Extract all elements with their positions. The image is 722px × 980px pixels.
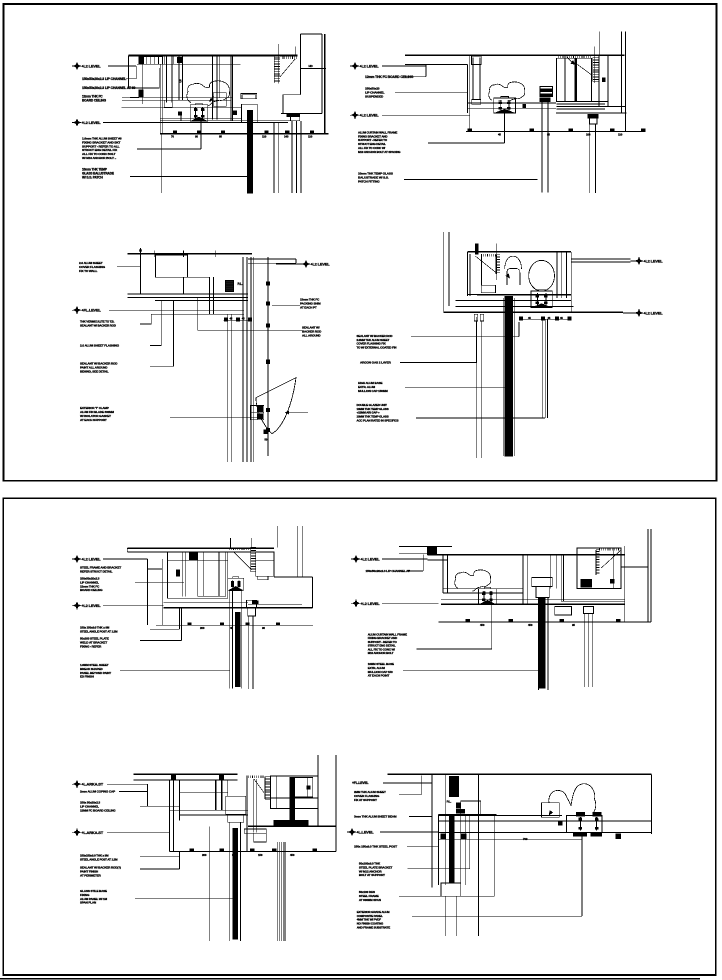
svg-text:+FL.LEVEL: +FL.LEVEL	[81, 308, 101, 313]
svg-text:M10 ANCHOR BOLT: M10 ANCHOR BOLT	[368, 651, 394, 655]
svg-text:STEEL ANGLE POST AT 1.2M: STEEL ANGLE POST AT 1.2M	[80, 629, 118, 633]
svg-text:+L2 LEVEL: +L2 LEVEL	[81, 120, 101, 125]
svg-text:+L2 LEVEL: +L2 LEVEL	[360, 557, 380, 562]
svg-text:150: 150	[258, 853, 263, 857]
svg-text:B: B	[179, 79, 182, 84]
svg-text:12mm THK FC BOARD CEILING: 12mm THK FC BOARD CEILING	[365, 75, 414, 79]
svg-text:150x50x20x2.3 LIP CHANNEL: 150x50x20x2.3 LIP CHANNEL	[82, 77, 126, 81]
svg-text:+L2 LEVEL: +L2 LEVEL	[81, 64, 101, 69]
svg-text:+L2 LEVEL: +L2 LEVEL	[81, 603, 101, 608]
svg-text:700: 700	[523, 837, 528, 841]
svg-text:90: 90	[195, 134, 198, 138]
svg-text:+L.ARKA.ST: +L.ARKA.ST	[81, 830, 104, 835]
svg-text:AT PERIMETER: AT PERIMETER	[80, 873, 102, 877]
svg-text:450: 450	[290, 853, 295, 857]
svg-text:M10 ANCHOR BOLT AT SPACING: M10 ANCHOR BOLT AT SPACING	[358, 150, 401, 154]
svg-text:450: 450	[528, 623, 533, 627]
svg-text:REFER STRUCT DETAIL: REFER STRUCT DETAIL	[80, 569, 113, 573]
svg-text:BOARD CEILING: BOARD CEILING	[82, 99, 107, 103]
svg-text:+L.ARKA.ST: +L.ARKA.ST	[81, 782, 104, 787]
svg-text:W/ M10 ANCHOR BOLT ..: W/ M10 ANCHOR BOLT ..	[82, 156, 116, 160]
svg-text:95: 95	[572, 623, 575, 627]
svg-text:SUSPENDED: SUSPENDED	[365, 94, 384, 98]
svg-text:AT EACH SUPPORT: AT EACH SUPPORT	[80, 418, 107, 422]
svg-text:+L2 LEVEL: +L2 LEVEL	[360, 601, 380, 606]
svg-text:BEHIND, SEE DETAIL: BEHIND, SEE DETAIL	[80, 369, 109, 373]
svg-text:FIX AT SUPPORT: FIX AT SUPPORT	[354, 798, 377, 802]
svg-text:FIXING - REFER: FIXING - REFER	[80, 644, 102, 648]
svg-text:+L2 LEVEL: +L2 LEVEL	[359, 113, 379, 118]
svg-text:MULLION CAP 150MM: MULLION CAP 150MM	[358, 389, 388, 393]
svg-text:ACC PLAN RATED IN SPECIFICS: ACC PLAN RATED IN SPECIFICS	[357, 418, 399, 422]
svg-text:W/ S.S. PATCH: W/ S.S. PATCH	[82, 176, 103, 180]
svg-text:+FL.LEVEL: +FL.LEVEL	[352, 781, 369, 785]
svg-text:45: 45	[230, 626, 233, 630]
svg-text:+L2 LEVEL: +L2 LEVEL	[643, 258, 663, 263]
svg-text:100: 100	[586, 132, 591, 136]
svg-text:3mm THK ALUM SHEET BEAM: 3mm THK ALUM SHEET BEAM	[354, 815, 397, 819]
svg-text:+L2 LEVEL: +L2 LEVEL	[310, 262, 330, 267]
svg-text:P.L.: P.L.	[238, 282, 243, 286]
svg-text:200: 200	[202, 853, 207, 857]
svg-text:ED FINISH: ED FINISH	[80, 675, 94, 679]
svg-text:SEALANT W/ BACKER ROD: SEALANT W/ BACKER ROD	[80, 324, 116, 328]
svg-text:+L2 LEVEL: +L2 LEVEL	[81, 557, 101, 562]
svg-text:FIX TO WALL: FIX TO WALL	[79, 269, 97, 273]
svg-text:AT EACH PT: AT EACH PT	[300, 305, 317, 309]
svg-text:PATCH FITTING: PATCH FITTING	[358, 180, 380, 184]
svg-text:450: 450	[480, 623, 485, 627]
svg-text:110: 110	[262, 134, 267, 138]
svg-text:+L.LEVEL: +L.LEVEL	[356, 830, 374, 835]
svg-text:50: 50	[265, 438, 268, 442]
svg-text:TO W/ EXTERNAL COATED FIN: TO W/ EXTERNAL COATED FIN	[357, 346, 397, 350]
svg-text:AT 600MM SPAN: AT 600MM SPAN	[359, 898, 381, 902]
svg-text:STEEL ANGLE POST AT 1.2M: STEEL ANGLE POST AT 1.2M	[80, 857, 118, 861]
svg-text:85: 85	[219, 134, 222, 138]
svg-text:200: 200	[200, 626, 205, 630]
svg-text:110: 110	[618, 132, 623, 136]
svg-text:2mm ALUM COPING CAP: 2mm ALUM COPING CAP	[80, 790, 115, 794]
svg-text:110: 110	[308, 134, 313, 138]
svg-text:P.L.: P.L.	[447, 800, 452, 804]
svg-text:12MM FC BOARD CEILING: 12MM FC BOARD CEILING	[80, 808, 116, 812]
svg-text:+L2 LEVEL: +L2 LEVEL	[643, 310, 663, 315]
svg-text:BOLT AT SUPPORT: BOLT AT SUPPORT	[359, 873, 385, 877]
svg-text:150x50x20x2.3 LIP CHANNEL AT 6: 150x50x20x2.3 LIP CHANNEL AT 60	[82, 86, 135, 90]
svg-text:2.0 ALUM SHEET FLASHING: 2.0 ALUM SHEET FLASHING	[80, 344, 120, 348]
svg-text:70: 70	[171, 134, 174, 138]
svg-text:+L2 LEVEL: +L2 LEVEL	[359, 64, 379, 69]
svg-text:AT EACH POINT: AT EACH POINT	[368, 674, 390, 678]
svg-text:AND FRAME SUBSTRATE: AND FRAME SUBSTRATE	[357, 925, 391, 929]
svg-text:45: 45	[498, 132, 501, 136]
svg-text:ALL AROUND: ALL AROUND	[302, 333, 321, 337]
svg-text:150x50x20x2.3 LIP CHANNEL AT: 150x50x20x2.3 LIP CHANNEL AT	[366, 569, 411, 573]
svg-text:140: 140	[284, 134, 289, 138]
svg-text:ARGON GAS 2 LAYER: ARGON GAS 2 LAYER	[360, 361, 392, 365]
svg-text:SPAN PLAN: SPAN PLAN	[80, 901, 96, 905]
svg-text:HD: HD	[309, 64, 314, 68]
svg-text:150x 150x9.0 THK STEEL POST: 150x 150x9.0 THK STEEL POST	[354, 845, 397, 849]
svg-text:95: 95	[547, 132, 550, 136]
svg-text:90: 90	[262, 626, 265, 630]
svg-text:BOARD CEILING: BOARD CEILING	[80, 588, 103, 592]
